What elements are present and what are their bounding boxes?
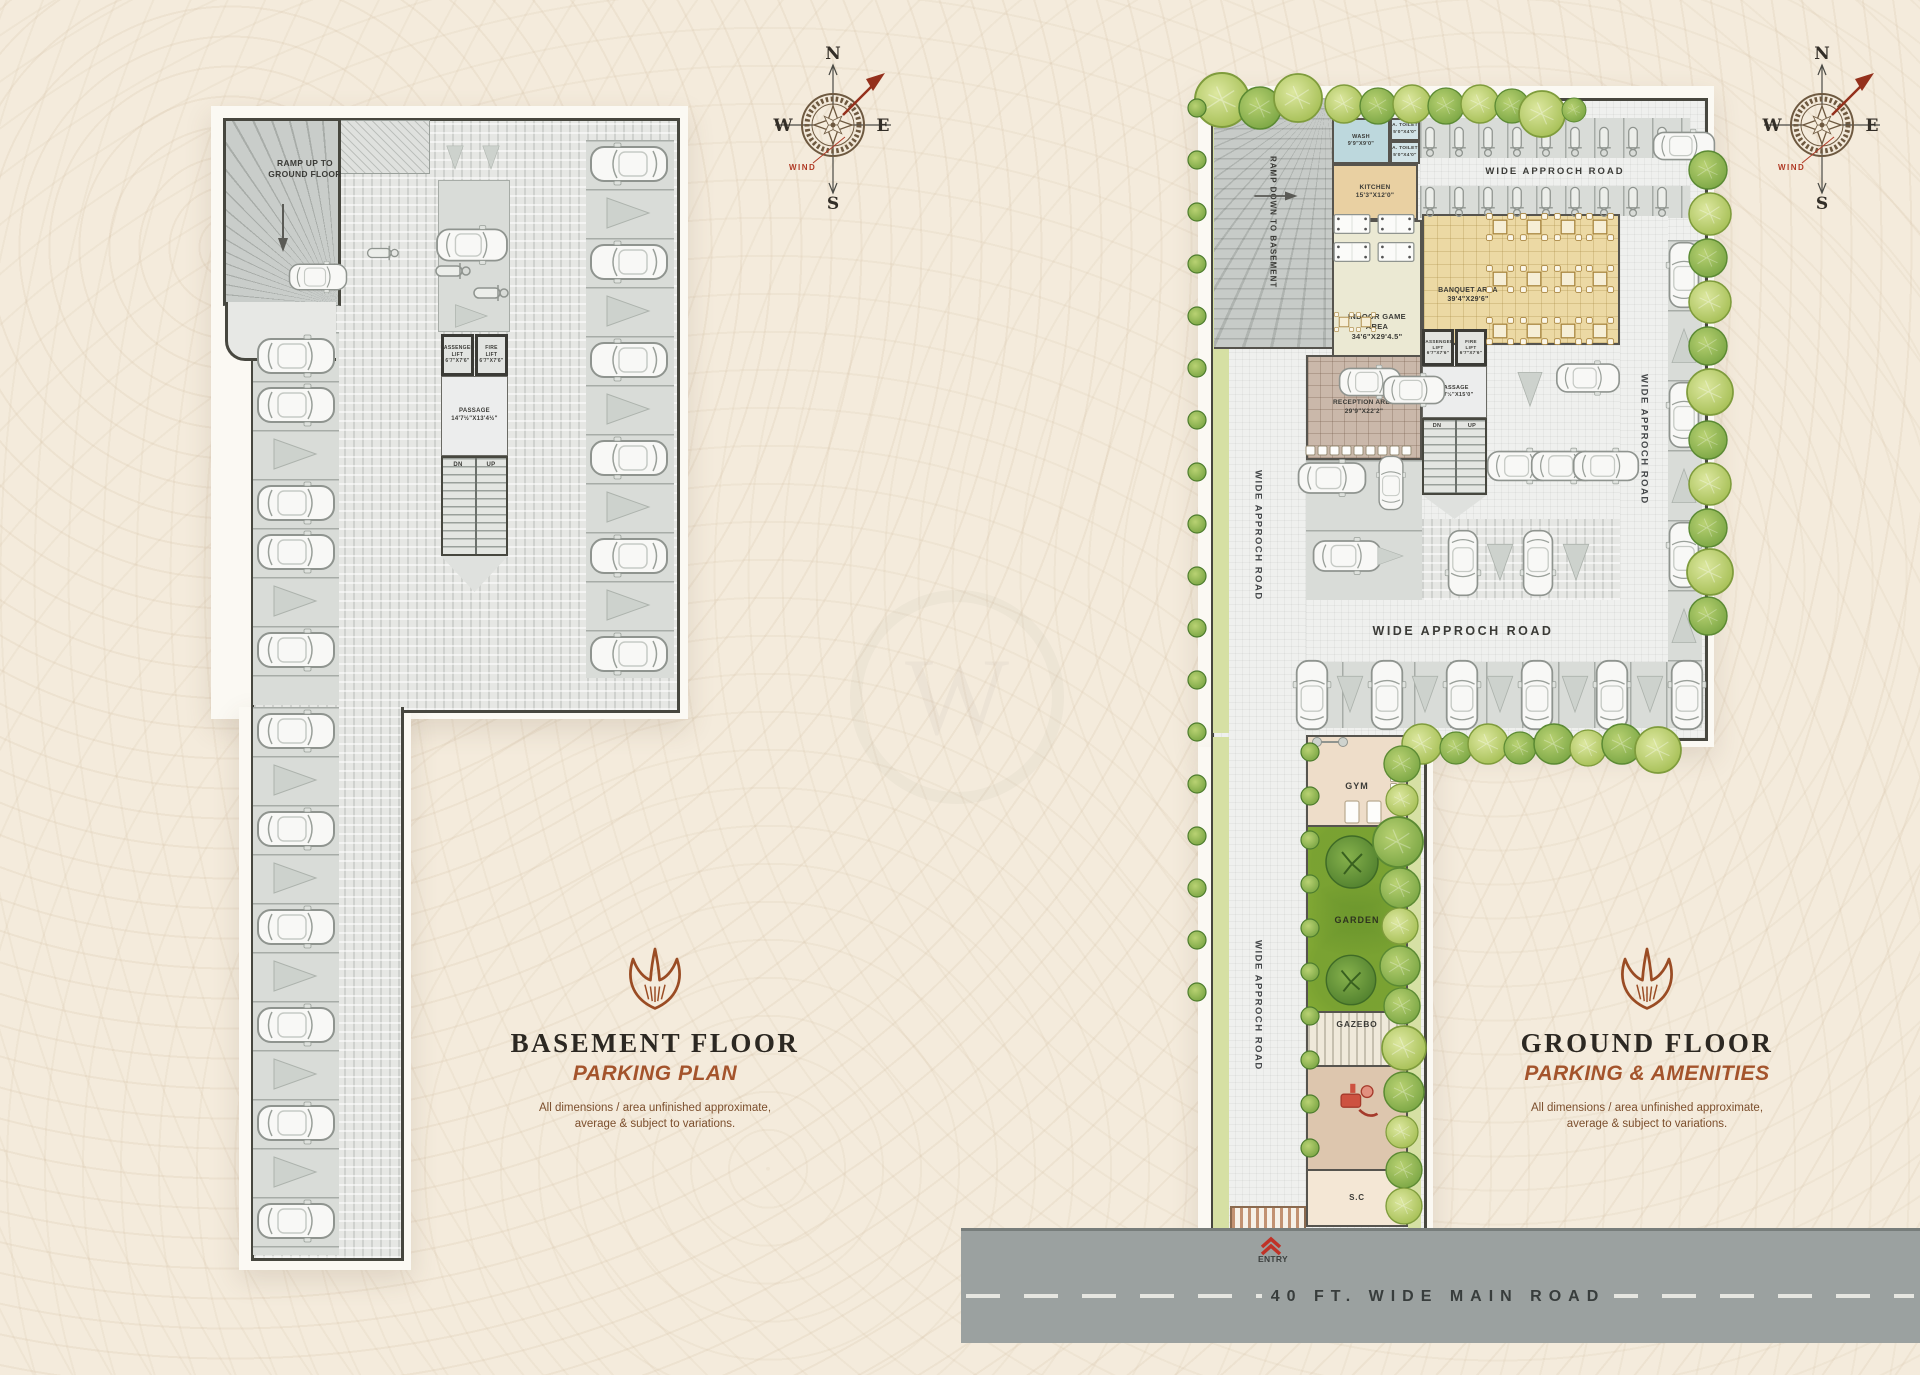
basement-stairs-dn-label: DN bbox=[447, 462, 469, 470]
watermark: W bbox=[850, 590, 1064, 804]
basement-passenger-lift-label: PASSENGER LIFT 6'7"X7'6" bbox=[441, 345, 475, 365]
ground-road-mid-label: WIDE APPROCH ROAD bbox=[1373, 623, 1554, 639]
compass-wind-label: WIND bbox=[789, 163, 816, 172]
ground-passage: PASSAGE 14'7½"X15'0" bbox=[1422, 366, 1487, 418]
compass-right: N S E W WIND bbox=[1737, 30, 1907, 220]
ground-road-left-label: WIDE APPROCH ROAD bbox=[1246, 410, 1270, 660]
compass-south: S bbox=[827, 194, 839, 214]
ground-toilet-a: A. TOILET 5'0"X4'0" bbox=[1390, 118, 1420, 141]
lotus-logo-icon bbox=[1615, 945, 1679, 1017]
compass-north: N bbox=[1814, 44, 1830, 64]
ground-ramp-label: RAMP DOWN TO BASEMENT bbox=[1214, 98, 1332, 347]
ground-road-top-label: WIDE APPROCH ROAD bbox=[1485, 166, 1624, 178]
ground-fire-lift: FIRE LIFT 6'7"X7'6" bbox=[1455, 329, 1487, 366]
ground-wash-room: WASH 9'9"X9'0" bbox=[1332, 118, 1390, 164]
basement-stairs-up-label: UP bbox=[480, 462, 502, 470]
ground-stairs: DN UP bbox=[1422, 418, 1487, 495]
ground-gym: GYM bbox=[1306, 735, 1408, 827]
ground-kitchen-label: KITCHEN 15'3"X12'0" bbox=[1356, 184, 1395, 201]
ground-top-bike-row-1 bbox=[1420, 118, 1690, 158]
ground-fire-lift-label: FIRE LIFT 6'7"X7'6" bbox=[1460, 339, 1483, 357]
basement-fire-lift: FIRE LIFT 6'7"X7'6" bbox=[475, 334, 508, 376]
ground-road-top: WIDE APPROCH ROAD bbox=[1420, 158, 1690, 186]
ground-stairs-up-label: UP bbox=[1462, 423, 1482, 430]
compass-west: W bbox=[772, 116, 793, 136]
main-road-label: 40 FT. WIDE MAIN ROAD bbox=[1262, 1284, 1614, 1310]
ground-play-area bbox=[1306, 1067, 1408, 1169]
ground-kitchen: KITCHEN 15'3"X12'0" bbox=[1332, 164, 1418, 220]
ground-subtitle: PARKING & AMENITIES bbox=[1497, 1062, 1797, 1086]
ground-wash-label: WASH 9'9"X9'0" bbox=[1348, 134, 1374, 148]
ground-disclaimer: All dimensions / area unfinished approxi… bbox=[1497, 1100, 1797, 1132]
ground-title: GROUND FLOOR bbox=[1497, 1028, 1797, 1059]
watermark-letter: W bbox=[905, 634, 1009, 761]
ground-banquet-label: BANQUET AREA 39'4"X29'6" bbox=[1428, 286, 1508, 304]
ground-passage-label: PASSAGE 14'7½"X15'0" bbox=[1435, 385, 1473, 399]
ground-road-right: WIDE APPROCH ROAD bbox=[1620, 216, 1668, 662]
ground-entry-gate bbox=[1230, 1206, 1306, 1230]
compass-rose-icon: N S E W WIND bbox=[748, 30, 918, 220]
ground-banquet-area: BANQUET AREA 39'4"X29'6" bbox=[1422, 214, 1620, 345]
ground-reception-area: RECEPTION AREA 29'9"X22'2" bbox=[1306, 355, 1422, 460]
ground-passenger-lift: PASSENGER LIFT 6'7"X7'6" bbox=[1422, 329, 1454, 366]
ground-road-right-label: WIDE APPROCH ROAD bbox=[1620, 216, 1668, 662]
ground-entry-label: ENTRY bbox=[1245, 1254, 1301, 1265]
ground-sc-label: S.C bbox=[1349, 1193, 1365, 1203]
ground-toilet-b: A. TOILET 5'0"X4'0" bbox=[1390, 141, 1420, 164]
ground-right-parking-col bbox=[1668, 240, 1702, 662]
compass-south: S bbox=[1816, 194, 1828, 214]
basement-center-parking-bays bbox=[438, 180, 510, 332]
compass-east: E bbox=[1866, 116, 1879, 136]
basement-ramp-turn bbox=[225, 302, 336, 361]
basement-left-parking-bays bbox=[253, 332, 339, 705]
basement-ramp bbox=[223, 118, 341, 306]
ground-strip-right-hedge bbox=[1408, 737, 1421, 1228]
ground-garden: GARDEN bbox=[1306, 827, 1408, 1011]
ground-title-block: GROUND FLOOR PARKING & AMENITIES All dim… bbox=[1497, 945, 1797, 1132]
ground-ramp: RAMP DOWN TO BASEMENT bbox=[1214, 98, 1334, 349]
basement-stairs: DN UP bbox=[441, 456, 508, 556]
ground-toilet-b-label: A. TOILET 5'0"X4'0" bbox=[1392, 146, 1418, 158]
ground-indoor-game-area: INDOOR GAME AREA 34'6"X29'4.5" bbox=[1332, 220, 1422, 360]
ground-gazebo-label: GAZEBO bbox=[1308, 1019, 1406, 1030]
basement-ramp-label: RAMP UP TO GROUND FLOOR bbox=[255, 158, 355, 180]
ground-stairs-dn-label: DN bbox=[1427, 423, 1447, 430]
basement-subtitle: PARKING PLAN bbox=[505, 1062, 805, 1086]
basement-right-parking-bays bbox=[586, 140, 674, 678]
ground-reception-label: RECEPTION AREA 29'9"X22'2" bbox=[1333, 399, 1395, 416]
ground-gym-label: GYM bbox=[1308, 781, 1406, 793]
ground-road-mid: WIDE APPROCH ROAD bbox=[1306, 600, 1620, 662]
basement-strip-parking-bays bbox=[253, 707, 339, 1255]
compass-east: E bbox=[877, 116, 890, 136]
basement-passage: PASSAGE 14'7½"X13'4½" bbox=[441, 376, 508, 456]
basement-disclaimer: All dimensions / area unfinished approxi… bbox=[505, 1100, 805, 1132]
compass-wind-label: WIND bbox=[1778, 163, 1805, 172]
compass-rose-icon: N S E W WIND bbox=[1737, 30, 1907, 220]
compass-left: N S E W WIND bbox=[748, 30, 918, 220]
brochure-page: RAMP UP TO GROUND FLOOR PASSENGER LIFT 6… bbox=[0, 0, 1920, 1375]
ground-passenger-lift-label: PASSENGER LIFT 6'7"X7'6" bbox=[1422, 339, 1453, 357]
ground-strip-left-hedge bbox=[1213, 737, 1229, 1228]
ground-toilet-a-label: A. TOILET 5'0"X4'0" bbox=[1392, 123, 1418, 135]
ground-road-strip-label: WIDE APPROCH ROAD bbox=[1246, 890, 1270, 1120]
ground-reception-parking-bays bbox=[1306, 460, 1422, 600]
ground-sc-room: S.C bbox=[1306, 1169, 1408, 1227]
ground-bottom-parking-row bbox=[1306, 662, 1702, 728]
basement-title-block: BASEMENT FLOOR PARKING PLAN All dimensio… bbox=[505, 945, 805, 1132]
compass-north: N bbox=[825, 44, 841, 64]
ground-center-paved-area bbox=[1422, 519, 1620, 600]
lotus-logo-icon bbox=[623, 945, 687, 1017]
ground-garden-label: GARDEN bbox=[1308, 915, 1406, 927]
basement-fire-lift-label: FIRE LIFT 6'7"X7'6" bbox=[479, 345, 503, 365]
ground-gazebo: GAZEBO bbox=[1306, 1011, 1408, 1067]
ground-indoor-game-label: INDOOR GAME AREA 34'6"X29'4.5" bbox=[1336, 312, 1418, 341]
basement-passage-label: PASSAGE 14'7½"X13'4½" bbox=[451, 408, 497, 424]
basement-passenger-lift: PASSENGER LIFT 6'7"X7'6" bbox=[441, 334, 474, 376]
basement-title: BASEMENT FLOOR bbox=[505, 1028, 805, 1059]
compass-west: W bbox=[1761, 116, 1782, 136]
